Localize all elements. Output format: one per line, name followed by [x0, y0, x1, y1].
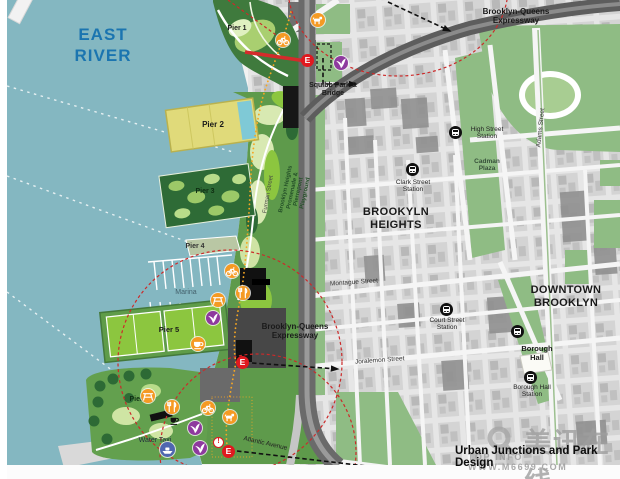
- alert-icon: !: [213, 437, 224, 448]
- label-pier-5: Pier 5: [152, 326, 186, 335]
- bike-icon: [201, 401, 215, 415]
- label-squibb-park-bridge: Squibb Park & Bridge: [306, 82, 360, 98]
- label-cadman-plaza: Cadman Plaza: [465, 158, 509, 173]
- label-bqe-top: Brooklyn-Queens Expressway: [475, 7, 557, 25]
- court-street-station-icon: [440, 303, 453, 316]
- label-borough-hall: Borough Hall: [516, 345, 558, 362]
- map-graphic: [0, 0, 620, 479]
- label-clark-street-station: Clark Street Station: [389, 179, 437, 194]
- borough-hall-45-station-icon: [511, 325, 524, 338]
- dog-run-icon: [311, 13, 325, 27]
- bike-icon: [276, 33, 290, 47]
- left-margin: [0, 0, 7, 479]
- playground-icon: [334, 56, 348, 70]
- water-taxi-icon: [160, 442, 175, 457]
- playground-icon: [188, 421, 202, 435]
- map-title: Urban Junctions and Park Design: [455, 445, 620, 469]
- picnic-table-icon: [141, 389, 155, 403]
- playground-icon: [193, 441, 207, 455]
- cafe-icon: [191, 337, 205, 351]
- map-canvas: EAST RIVER Pier 1 Pier 2 Pier 3 Pier 4 P…: [0, 0, 620, 479]
- high-street-station-icon: [449, 126, 462, 139]
- bqe-entrance-marker-north: E: [301, 54, 314, 67]
- borough-hall-station-icon: [524, 371, 537, 384]
- cafe-icon-dark: [168, 414, 180, 426]
- label-pier-4: Pier 4: [180, 243, 210, 251]
- bike-icon: [225, 264, 239, 278]
- dog-run-icon: [223, 410, 237, 424]
- label-marina: Marina: [168, 289, 204, 297]
- label-pier-1: Pier 1: [222, 25, 252, 33]
- label-downtown-brooklyn: DOWNTOWN BROOKLYN: [516, 284, 616, 309]
- pier-6: [86, 368, 207, 461]
- label-borough-hall-station: Borough Hall Station: [507, 384, 557, 399]
- label-pier-3: Pier 3: [190, 188, 220, 196]
- label-east-river: EAST RIVER: [58, 24, 148, 67]
- label-high-street-station: High Street Station: [464, 126, 510, 141]
- restaurant-icon: [165, 400, 179, 414]
- label-court-street-station: Court Street Station: [423, 317, 471, 332]
- clark-street-station-icon: [406, 163, 419, 176]
- bqe-entrance-marker-atlantic: E: [222, 445, 235, 458]
- bqe-entrance-marker-joralemon: E: [236, 356, 249, 369]
- picnic-table-icon: [211, 293, 225, 307]
- playground-icon: [206, 311, 220, 325]
- label-pier-2: Pier 2: [194, 120, 232, 129]
- label-bqe-mid: Brooklyn-Queens Expressway: [258, 322, 332, 340]
- label-brooklyn-heights: BROOKYLN HEIGHTS: [350, 206, 442, 231]
- restaurant-icon: [236, 286, 250, 300]
